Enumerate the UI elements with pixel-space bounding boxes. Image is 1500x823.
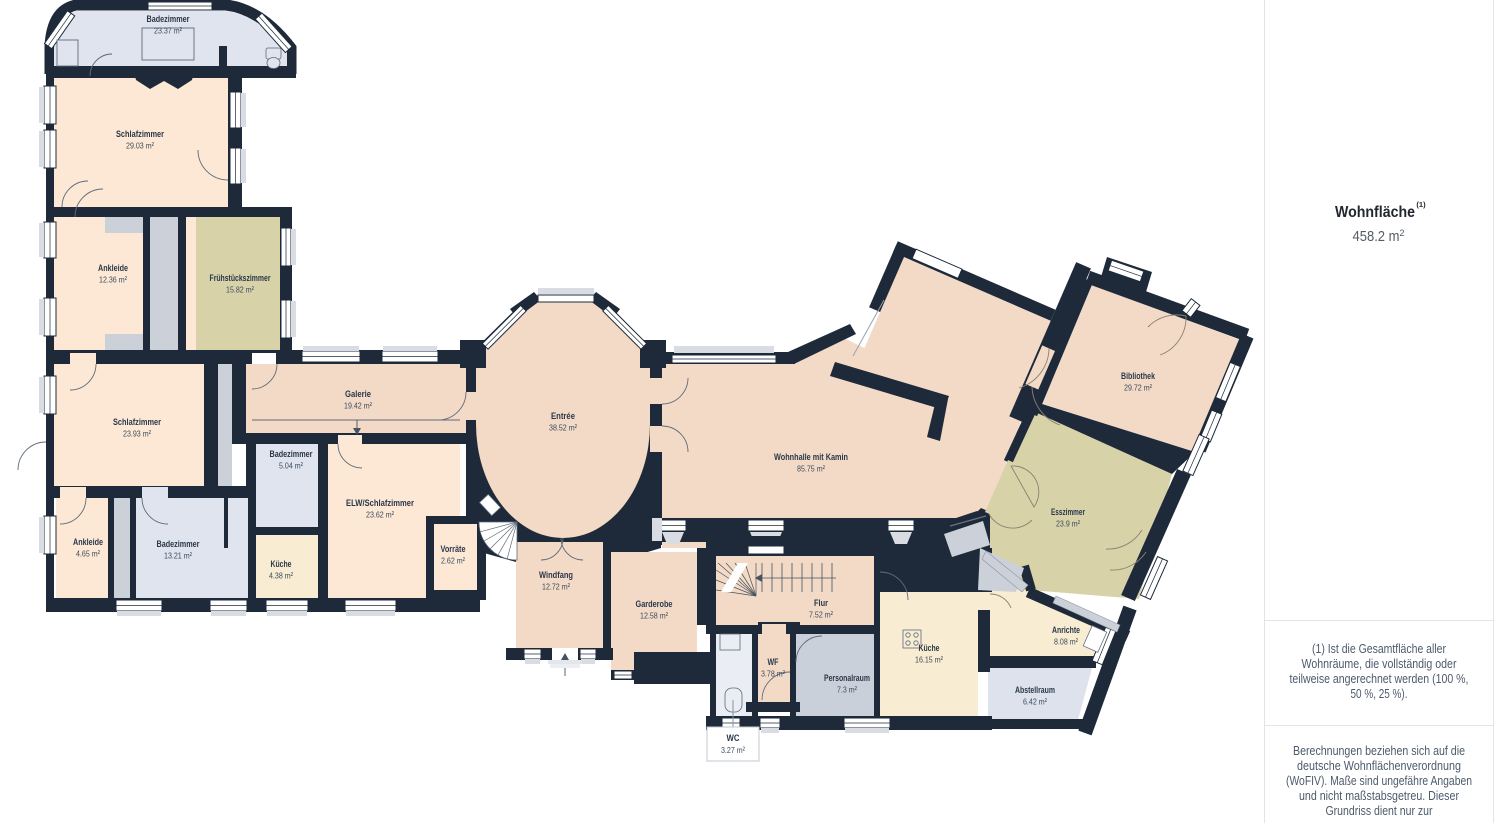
svg-text:Anrichte: Anrichte [1052,625,1080,636]
svg-text:Badezimmer: Badezimmer [157,539,200,550]
svg-text:50 %, 25 %).: 50 %, 25 %). [1351,686,1408,701]
svg-text:Schlafzimmer: Schlafzimmer [116,129,164,140]
svg-text:8.08 m²: 8.08 m² [1054,637,1078,647]
svg-text:Garderobe: Garderobe [636,599,673,610]
svg-text:23.9 m²: 23.9 m² [1056,519,1080,529]
svg-text:12.58 m²: 12.58 m² [640,611,668,621]
svg-text:Bibliothek: Bibliothek [1121,371,1156,382]
svg-text:Entrée: Entrée [551,411,575,422]
svg-text:7.52 m²: 7.52 m² [809,610,833,620]
svg-text:458.2 m: 458.2 m [1353,229,1400,245]
svg-text:85.75 m²: 85.75 m² [797,464,825,474]
svg-text:Wohnhalle mit Kamin: Wohnhalle mit Kamin [774,452,848,463]
svg-text:Schlafzimmer: Schlafzimmer [113,417,161,428]
svg-text:2: 2 [1399,228,1404,238]
svg-text:29.72 m²: 29.72 m² [1124,383,1152,393]
svg-text:Badezimmer: Badezimmer [147,14,190,25]
svg-text:Berechnungen beziehen sich auf: Berechnungen beziehen sich auf die [1293,743,1465,758]
svg-text:Vorräte: Vorräte [441,544,466,555]
svg-text:deutsche Wohnflächenverordnung: deutsche Wohnflächenverordnung [1297,758,1461,773]
svg-text:Galerie: Galerie [345,389,371,400]
svg-text:23.62 m²: 23.62 m² [366,510,394,520]
svg-text:Küche: Küche [919,643,940,654]
svg-text:3.78 m²: 3.78 m² [761,669,785,679]
svg-text:23.93 m²: 23.93 m² [123,429,151,439]
svg-text:ELW/Schlafzimmer: ELW/Schlafzimmer [346,498,414,509]
svg-text:16.15 m²: 16.15 m² [915,655,943,665]
svg-text:Ankleide: Ankleide [73,537,103,548]
svg-text:und nicht maßstabsgetreu. Dies: und nicht maßstabsgetreu. Dieser [1299,788,1460,803]
svg-text:Abstellraum: Abstellraum [1015,685,1055,696]
svg-text:WF: WF [768,657,779,668]
svg-text:Wohnfläche: Wohnfläche [1335,204,1415,221]
svg-text:12.72 m²: 12.72 m² [542,582,570,592]
svg-text:WC: WC [727,733,740,744]
svg-text:Badezimmer: Badezimmer [270,449,313,460]
svg-text:29.03 m²: 29.03 m² [126,141,154,151]
svg-text:5.04 m²: 5.04 m² [279,461,303,471]
svg-text:12.36 m²: 12.36 m² [99,275,127,285]
svg-text:3.27 m²: 3.27 m² [721,745,745,755]
svg-text:7.3 m²: 7.3 m² [837,685,857,695]
svg-text:Flur: Flur [814,598,828,609]
svg-text:13.21 m²: 13.21 m² [164,551,192,561]
svg-text:23.37 m²: 23.37 m² [154,26,182,36]
svg-text:(1) Ist die Gesamtfläche aller: (1) Ist die Gesamtfläche aller [1312,641,1447,656]
svg-text:15.82 m²: 15.82 m² [226,285,254,295]
svg-text:(1): (1) [1416,200,1426,209]
svg-text:38.52 m²: 38.52 m² [549,423,577,433]
svg-text:teilweise angerechnet werden (: teilweise angerechnet werden (100 %, [1290,671,1469,686]
svg-text:Küche: Küche [271,559,292,570]
svg-text:Wohnräume, die vollständig ode: Wohnräume, die vollständig oder [1302,656,1458,671]
svg-text:Windfang: Windfang [539,570,573,581]
svg-text:Ankleide: Ankleide [98,263,128,274]
svg-text:2.62 m²: 2.62 m² [441,556,465,566]
svg-text:Frühstückszimmer: Frühstückszimmer [210,273,271,284]
svg-text:Esszimmer: Esszimmer [1051,507,1085,518]
svg-text:(WoFIV). Maße sind ungefähre A: (WoFIV). Maße sind ungefähre Angaben [1286,773,1472,788]
svg-text:19.42 m²: 19.42 m² [344,401,372,411]
svg-text:6.42 m²: 6.42 m² [1023,697,1047,707]
svg-text:Personalraum: Personalraum [824,673,870,684]
svg-text:4.38 m²: 4.38 m² [269,571,293,581]
svg-text:4.65 m²: 4.65 m² [76,549,100,559]
svg-text:Grundriss dient nur zur: Grundriss dient nur zur [1326,803,1434,818]
